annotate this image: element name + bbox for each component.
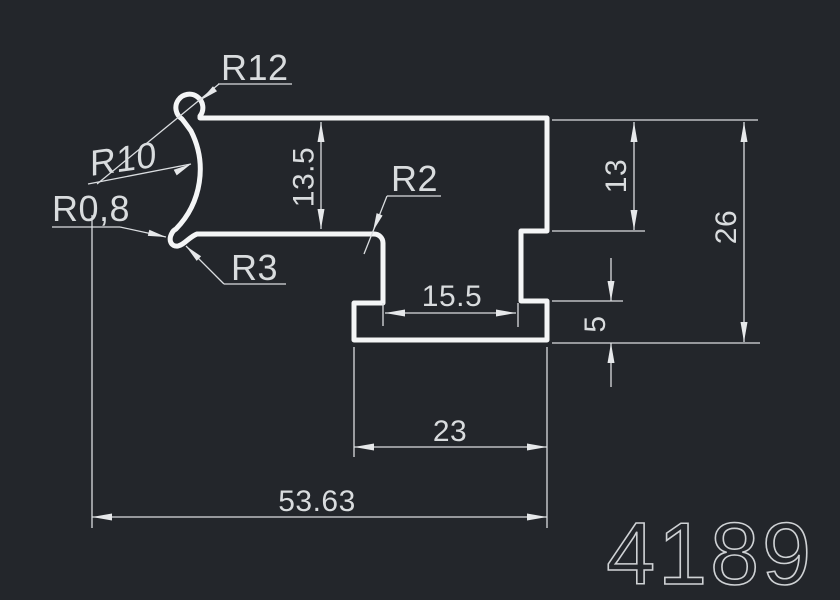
dimension-5: 5 [579, 258, 615, 387]
dimension-13: 13 [600, 122, 638, 230]
leader-arrowhead [186, 246, 201, 261]
dimension-13-5: 13.5 [288, 122, 325, 229]
cad-drawing-canvas: 13.5 13 26 5 15.5 [0, 0, 840, 600]
radius-label-r3: R3 [186, 246, 286, 288]
arrowhead-up [608, 343, 615, 363]
dimension-53-63: 53.63 [92, 485, 547, 521]
arrowhead-left [92, 514, 112, 521]
cad-drawing: 13.5 13 26 5 15.5 [0, 0, 840, 600]
radius-label-r2: R2 [364, 158, 441, 254]
radius-value: R12 [221, 47, 289, 88]
dimension-value: 13 [600, 159, 633, 193]
dimension-value: 23 [433, 415, 467, 448]
arrowhead-down [741, 322, 748, 342]
arrowhead-right [496, 310, 516, 317]
dimension-value: 5 [579, 315, 612, 332]
radius-value: R2 [391, 158, 438, 199]
arrowhead-up [318, 122, 325, 142]
part-number: 4189 [606, 504, 814, 600]
leader-arrowhead [201, 86, 217, 100]
leader-arrowhead [148, 230, 166, 237]
arrowhead-down [631, 210, 638, 230]
radius-value: R0,8 [52, 188, 130, 229]
dimension-value: 53.63 [278, 485, 356, 518]
radius-value: R10 [90, 133, 157, 184]
profile-outline [170, 94, 547, 340]
arrowhead-left [385, 310, 405, 317]
radius-value: R3 [231, 247, 278, 288]
dimension-value: 26 [710, 210, 743, 244]
leader-arrowhead [373, 213, 383, 231]
arrowhead-up [741, 122, 748, 142]
arrowhead-right [527, 514, 547, 521]
dimension-value: 13.5 [288, 147, 321, 207]
arrowhead-down [608, 281, 615, 301]
arrowhead-left [354, 444, 374, 451]
arrowhead-right [527, 444, 547, 451]
arrowhead-down [318, 209, 325, 229]
dimension-26: 26 [710, 122, 748, 342]
dimension-23: 23 [354, 415, 547, 451]
dimension-value: 15.5 [422, 280, 482, 313]
dimension-15-5: 15.5 [385, 280, 516, 317]
radius-label-r0-8: R0,8 [52, 188, 166, 237]
radius-label-r10: R10 [88, 133, 191, 184]
arrowhead-up [631, 122, 638, 142]
